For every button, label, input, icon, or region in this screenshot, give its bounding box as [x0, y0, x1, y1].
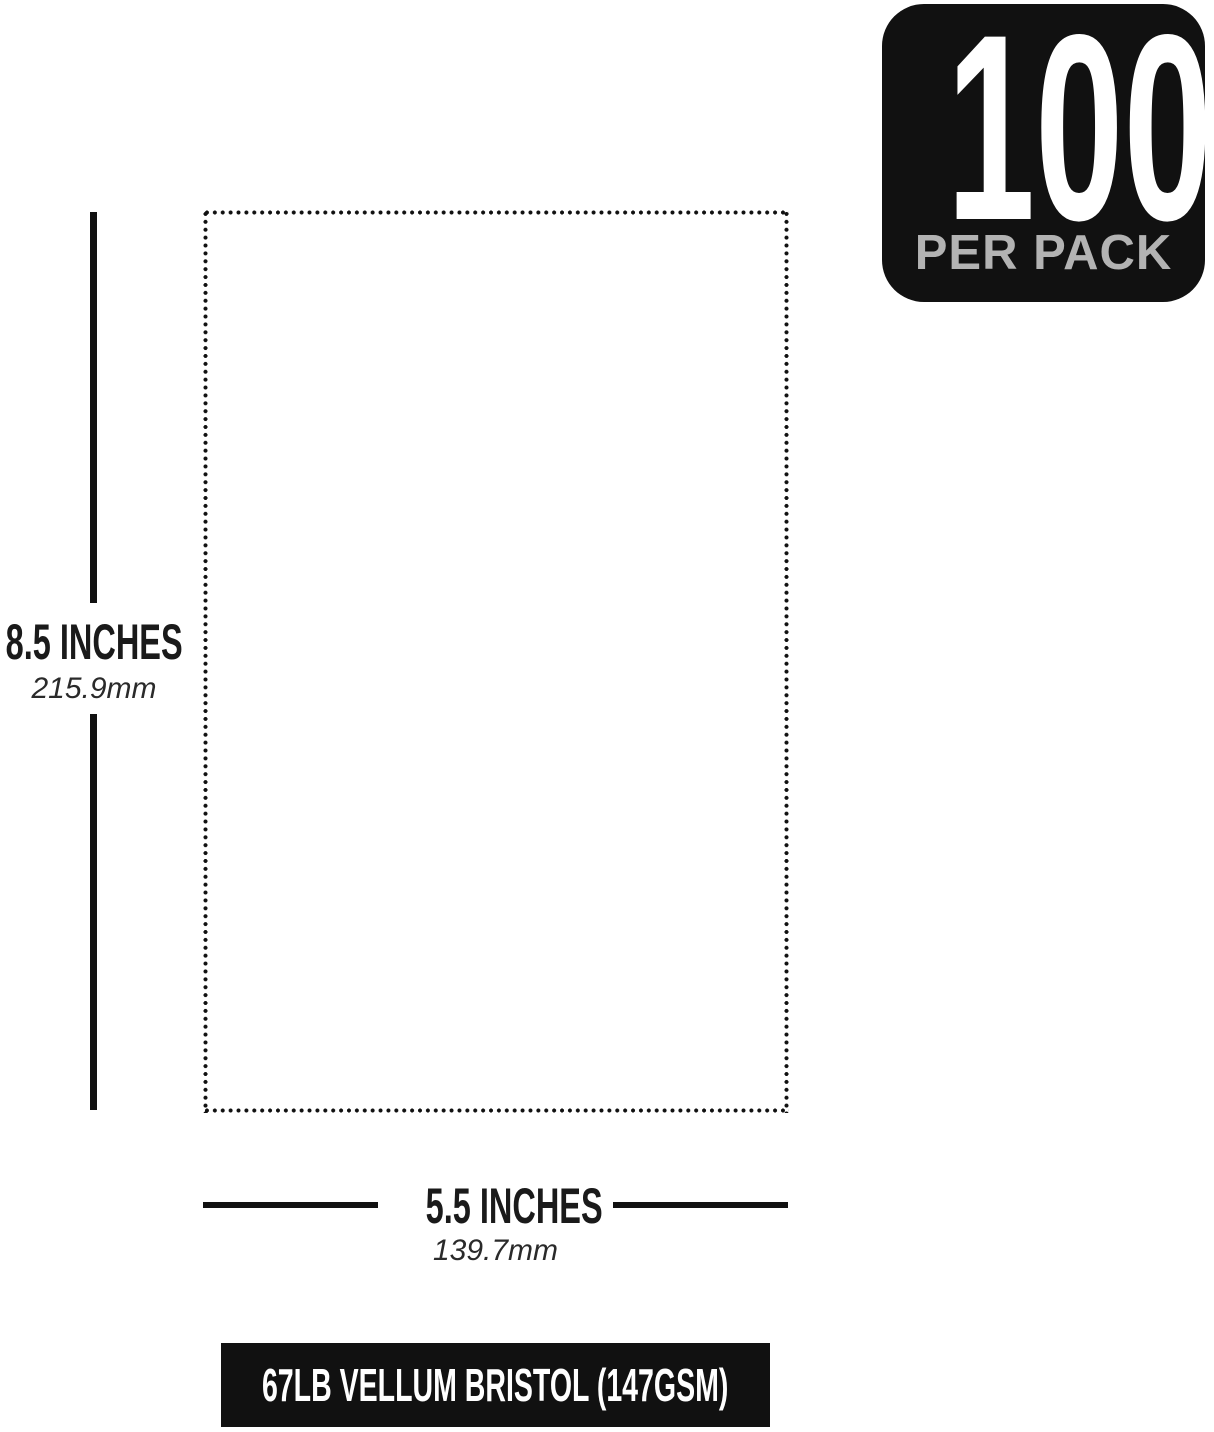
paper-size-diagram: 100 PER PACK 8.5 INCHES 215.9mm 5.5 INCH…	[0, 0, 1214, 1432]
paper-outline-right-edge	[784, 210, 789, 1113]
width-inches-label: 5.5 INCHES	[378, 1182, 613, 1230]
height-dimension-line-upper	[90, 212, 97, 603]
pack-count-label: PER PACK	[882, 225, 1205, 281]
width-dimension-line-right	[613, 1202, 788, 1208]
product-spec-text: 67LB VELLUM BRISTOL (147GSM)	[262, 1358, 728, 1412]
height-mm-label: 215.9mm	[0, 672, 244, 706]
per-pack-badge: 100 PER PACK	[882, 4, 1205, 302]
height-dimension-line-lower	[90, 714, 97, 1110]
paper-outline-bottom-edge	[203, 1108, 789, 1113]
product-spec-banner: 67LB VELLUM BRISTOL (147GSM)	[221, 1343, 770, 1427]
width-inches-text: 5.5 INCHES	[426, 1182, 603, 1230]
pack-count: 100	[947, 0, 1141, 261]
height-inches-text: 8.5 INCHES	[5, 616, 182, 668]
height-inches-label: 8.5 INCHES	[0, 616, 244, 668]
height-dimension-label: 8.5 INCHES 215.9mm	[0, 616, 244, 706]
width-mm-label: 139.7mm	[378, 1234, 613, 1268]
width-dimension: 5.5 INCHES 139.7mm	[203, 1182, 788, 1268]
paper-outline-top-edge	[203, 210, 789, 215]
width-dimension-line-left	[203, 1202, 378, 1208]
width-dimension-label: 5.5 INCHES 139.7mm	[378, 1182, 613, 1268]
